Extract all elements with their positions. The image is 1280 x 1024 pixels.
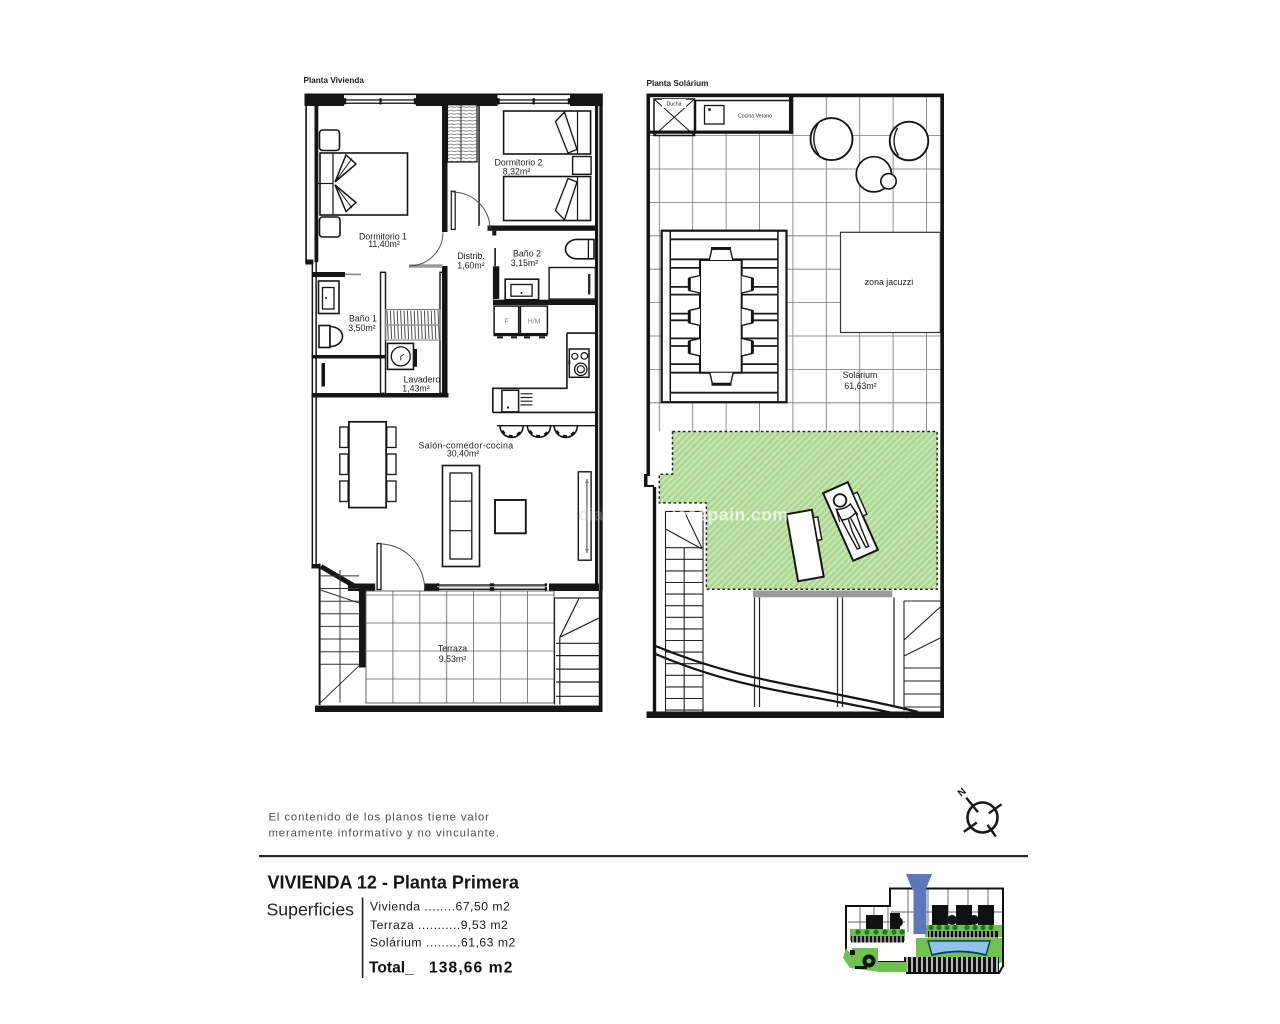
- svg-text:meramente informativo y no vin: meramente informativo y no vinculante.: [269, 828, 500, 840]
- svg-text:dia: dia: [578, 505, 604, 525]
- svg-text:138,66 m2: 138,66 m2: [429, 960, 513, 977]
- svg-text:Total_: Total_: [369, 960, 414, 977]
- svg-text:30,40m²: 30,40m²: [447, 449, 479, 459]
- svg-text:El contenido de los planos tie: El contenido de los planos tiene valor: [269, 812, 490, 824]
- svg-text:Vivienda ........67,50 m2: Vivienda ........67,50 m2: [370, 900, 510, 914]
- svg-text:VIVIENDA 12 - Planta Primera: VIVIENDA 12 - Planta Primera: [268, 873, 520, 893]
- svg-text:11,40m²: 11,40m²: [368, 239, 400, 249]
- svg-text:H/M: H/M: [528, 319, 541, 326]
- svg-text:Ducha: Ducha: [667, 102, 682, 108]
- svg-text:Superficies: Superficies: [267, 900, 355, 920]
- svg-text:Baño 2: Baño 2: [513, 249, 541, 259]
- svg-text:8,32m²: 8,32m²: [503, 167, 530, 177]
- svg-text:Planta Vivienda: Planta Vivienda: [304, 76, 365, 85]
- svg-text:iesspain.com: iesspain.com: [672, 505, 789, 525]
- svg-text:Solárium .........61,63 m2: Solárium .........61,63 m2: [370, 936, 516, 950]
- svg-text:3,50m²: 3,50m²: [348, 323, 375, 333]
- svg-text:Terraza ...........9,53 m2: Terraza ...........9,53 m2: [370, 918, 508, 932]
- svg-text:Terraza: Terraza: [438, 644, 467, 654]
- svg-text:61,63m²: 61,63m²: [844, 381, 876, 391]
- svg-text:zona jacuzzi: zona jacuzzi: [865, 277, 913, 287]
- svg-text:3,15m²: 3,15m²: [511, 258, 538, 268]
- svg-text:9,53m²: 9,53m²: [439, 654, 466, 664]
- svg-text:1,60m²: 1,60m²: [457, 261, 484, 271]
- svg-text:Distrib.: Distrib.: [457, 251, 484, 261]
- svg-text:Cocina Verano: Cocina Verano: [738, 114, 772, 120]
- svg-text:Baño 1: Baño 1: [349, 314, 377, 324]
- svg-text:Solárium: Solárium: [843, 370, 878, 380]
- svg-text:F: F: [504, 319, 508, 326]
- svg-text:1,43m²: 1,43m²: [402, 384, 429, 394]
- svg-text:Planta Solárium: Planta Solárium: [647, 79, 709, 88]
